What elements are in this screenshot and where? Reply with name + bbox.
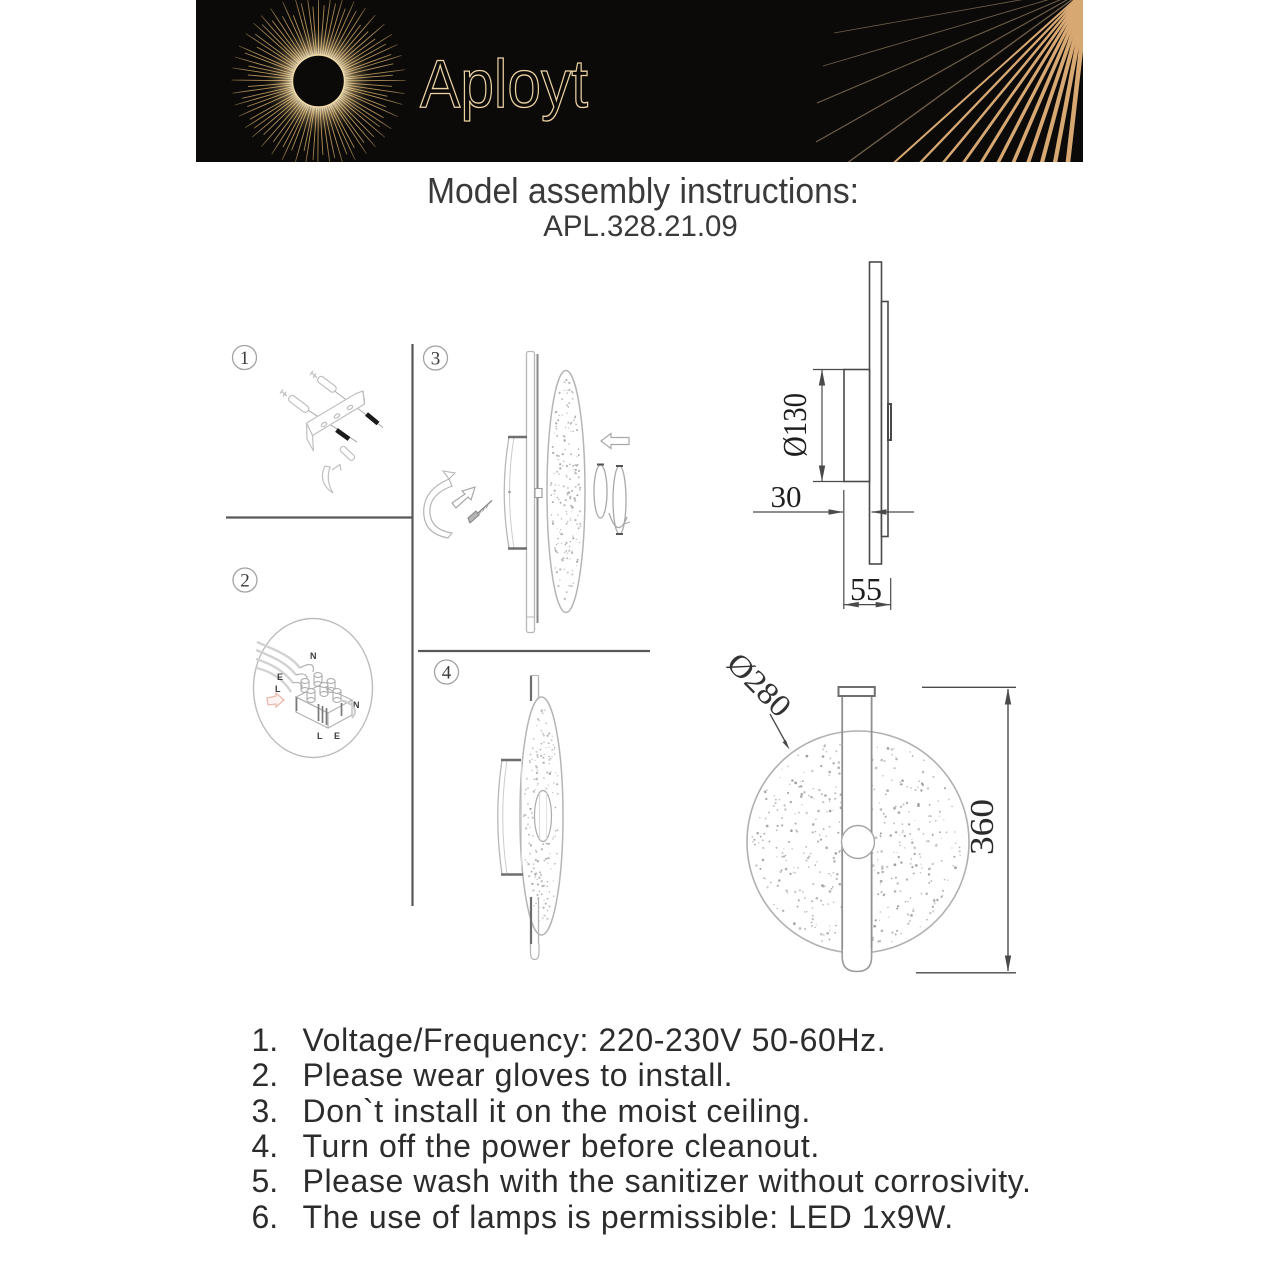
svg-text:1: 1	[240, 348, 250, 369]
svg-text:4: 4	[442, 663, 452, 684]
svg-text:Ø280: Ø280	[720, 645, 798, 723]
svg-text:55: 55	[850, 571, 882, 607]
svg-text:N: N	[310, 651, 317, 661]
svg-text:L: L	[317, 731, 323, 741]
svg-text:360: 360	[964, 799, 1001, 855]
svg-text:Ø130: Ø130	[777, 393, 814, 457]
svg-text:3: 3	[431, 349, 441, 370]
svg-text:E: E	[334, 731, 340, 741]
svg-text:E: E	[277, 672, 283, 682]
svg-text:L: L	[275, 684, 281, 694]
svg-text:30: 30	[771, 479, 802, 514]
svg-text:2: 2	[240, 571, 250, 592]
